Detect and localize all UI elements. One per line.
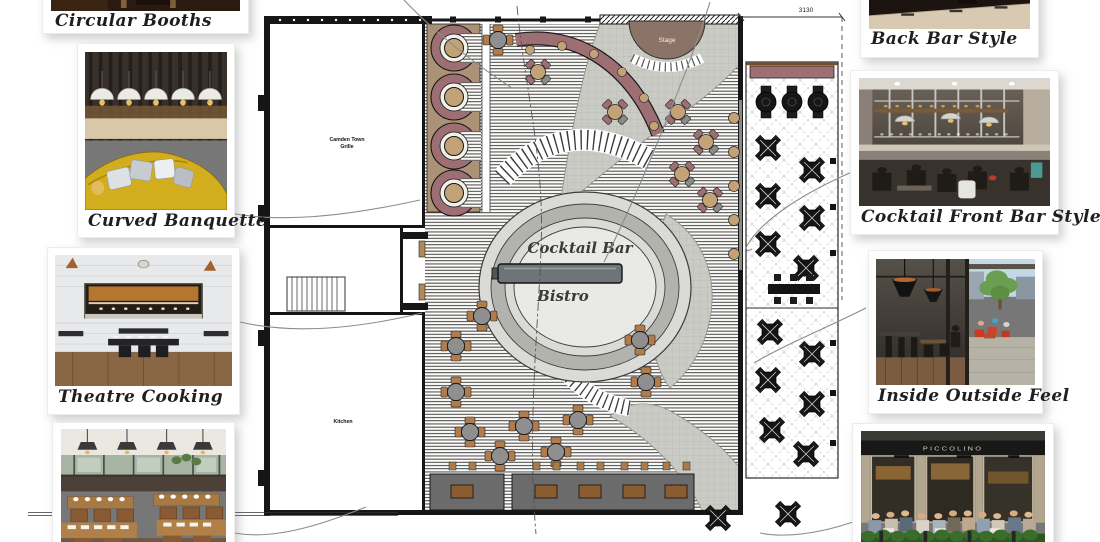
cocktail-bar-label: Cocktail Bar [527,239,633,257]
polaroid-cocktail-front-bar: Cocktail Front Bar Style [850,70,1059,235]
dimension-label: 3130 [799,7,814,14]
wall-light-icon [138,260,149,268]
awning-sign: PICCOLINO [923,446,983,452]
caption-curved-banquette: Curved Banquette [88,211,267,231]
photo-circular-booths [51,0,240,11]
upper-room-label: Camden Town [329,137,364,143]
diners [868,510,1035,533]
concept-board: Camden Town Grille Kitchen [0,0,1100,542]
cocktail-bar-oval: Cocktail Bar Bistro [479,192,691,382]
caption-cocktail-front-bar: Cocktail Front Bar Style [861,207,1100,227]
photo-street-terrace: PICCOLINO [861,431,1045,542]
caption-inside-outside: Inside Outside Feel [878,386,1069,406]
photo-theatre-cooking [55,255,232,386]
polaroid-street-terrace: PICCOLINO [852,423,1054,542]
terrace-banquette [750,66,834,78]
photo-cocktail-front-bar [859,78,1050,206]
photo-back-bar [869,0,1030,29]
photo-inside-outside [876,259,1035,385]
photo-dining-tables [61,429,226,542]
polaroid-curved-banquette: Curved Banquette [77,43,235,238]
polaroid-back-bar: Back Bar Style [860,0,1039,58]
caption-back-bar: Back Bar Style [871,29,1018,49]
polaroid-circular-booths: Circular Booths [42,0,249,34]
circular-booths-plan [427,24,481,216]
polaroid-dining-tables [52,422,235,542]
bar-counter [498,264,622,283]
photo-curved-banquette [85,52,227,210]
polaroid-inside-outside: Inside Outside Feel [868,250,1043,414]
caption-theatre-cooking: Theatre Cooking [58,387,223,407]
stage-label: Stage [659,37,676,44]
caption-circular-booths: Circular Booths [55,11,212,31]
staircase [287,277,345,311]
lower-room-label: Kitchen [333,419,352,425]
svg-text:Grille: Grille [340,144,353,150]
polaroid-theatre-cooking: Theatre Cooking [47,247,240,415]
bistro-label: Bistro [536,287,589,305]
